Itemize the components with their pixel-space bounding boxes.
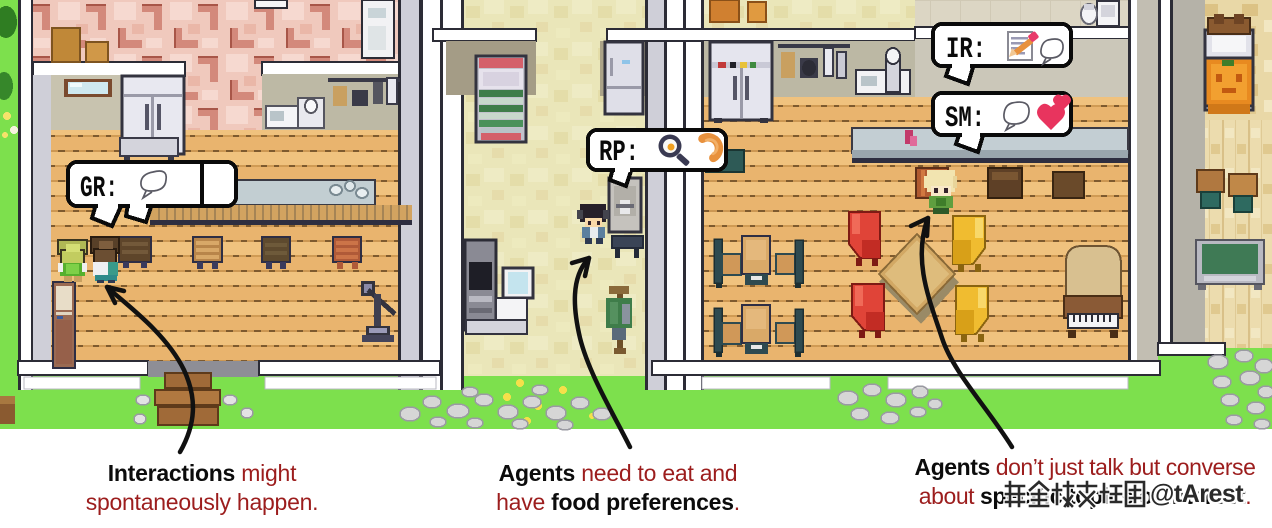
svg-text:IR:: IR:	[946, 33, 986, 67]
svg-text:RP:: RP:	[599, 136, 639, 170]
svg-text:SM:: SM:	[945, 102, 985, 136]
svg-text:GR:: GR:	[80, 172, 118, 206]
